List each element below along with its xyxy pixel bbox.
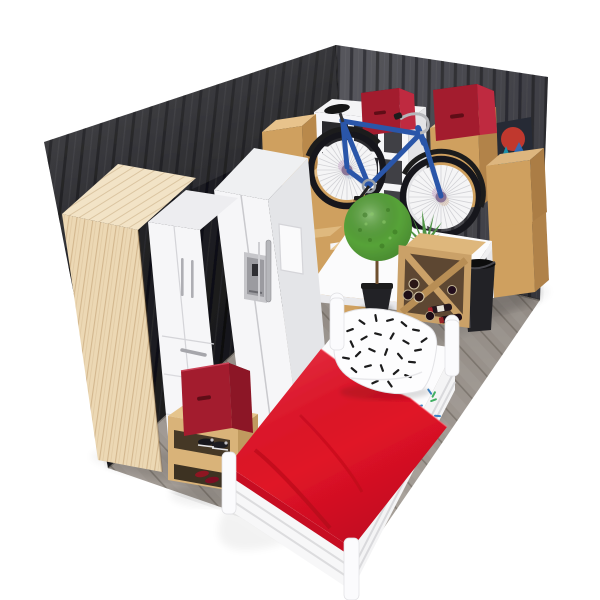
storage-room-illustration (0, 0, 600, 600)
storage-bin-on-box (433, 84, 497, 141)
fridge-door-panel (279, 224, 303, 274)
scene (44, 45, 552, 600)
plant-pot (362, 288, 392, 310)
bed-post (344, 538, 359, 600)
bin-side (399, 88, 416, 131)
wine-bottle (448, 286, 457, 295)
wine-bottle (426, 312, 435, 321)
wine-bottle (403, 290, 413, 300)
fridge-handle-thin (258, 242, 260, 300)
wine-bottle (414, 292, 424, 302)
bed-post (330, 298, 344, 350)
dispenser-spout (252, 264, 259, 276)
bin-front (433, 84, 480, 141)
wine-bottle (409, 279, 419, 289)
cardboard-box (486, 148, 547, 230)
bin-side (477, 84, 497, 135)
water-dispenser (244, 252, 267, 303)
storage-room-3d-view (0, 0, 600, 600)
door-handle (181, 258, 184, 296)
storage-bin-on-bench (181, 363, 253, 436)
fridge-handle (266, 240, 271, 302)
bed-post (445, 320, 459, 376)
door-handle (191, 260, 194, 298)
cardboard-boxes-right (486, 148, 549, 298)
bin-side (229, 363, 253, 433)
bed-post (222, 452, 236, 514)
